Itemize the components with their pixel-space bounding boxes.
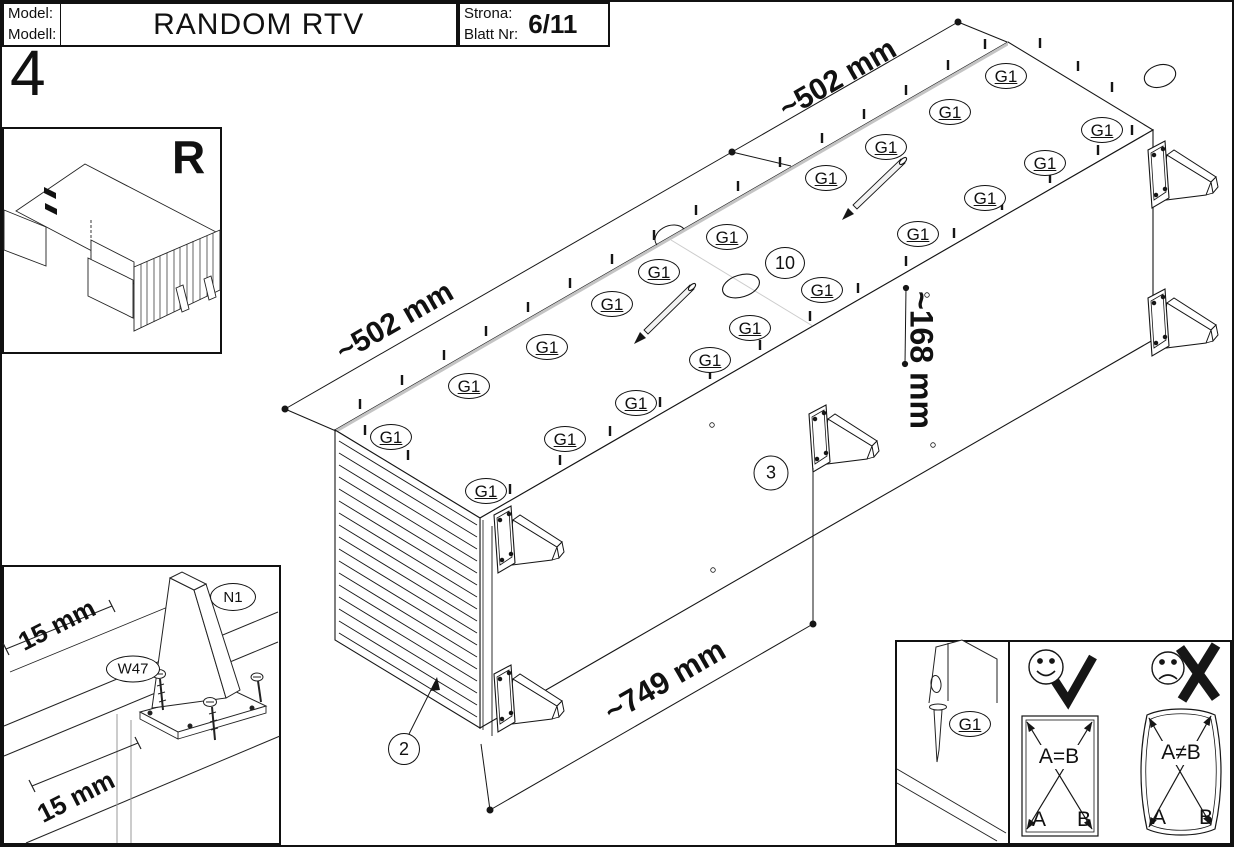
nail-detail-drawing bbox=[897, 640, 1006, 841]
page-label-column: Strona: Blatt Nr: bbox=[460, 4, 522, 45]
model-name: RANDOM RTV bbox=[61, 4, 456, 45]
x-mark-icon bbox=[1180, 645, 1216, 700]
equal-diagonals-figure bbox=[1022, 716, 1098, 836]
model-label: Model: bbox=[8, 4, 56, 24]
diagram-canvas bbox=[0, 0, 1234, 847]
step-number: 4 bbox=[10, 36, 46, 110]
smiley-face-icon bbox=[1029, 650, 1063, 684]
orientation-inset-drawing bbox=[4, 164, 220, 331]
strona-label: Strona: bbox=[464, 4, 518, 24]
assembly-instruction-page: Model: Modell: RANDOM RTV Strona: Blatt … bbox=[0, 0, 1234, 847]
check-mark-icon bbox=[1055, 657, 1093, 701]
sad-face-icon bbox=[1152, 652, 1184, 684]
main-cabinet-drawing bbox=[282, 19, 1218, 813]
leg-detail-drawing bbox=[3, 572, 280, 843]
unequal-diagonals-figure bbox=[1141, 709, 1221, 835]
title-block: Model: Modell: RANDOM RTV bbox=[2, 2, 458, 47]
page-block: Strona: Blatt Nr: 6/11 bbox=[458, 2, 610, 47]
mirror-variant-mark: R bbox=[172, 130, 203, 184]
blatt-label: Blatt Nr: bbox=[464, 25, 518, 45]
page-number: 6/11 bbox=[522, 4, 583, 45]
diagonal-check-drawing bbox=[1022, 645, 1221, 836]
